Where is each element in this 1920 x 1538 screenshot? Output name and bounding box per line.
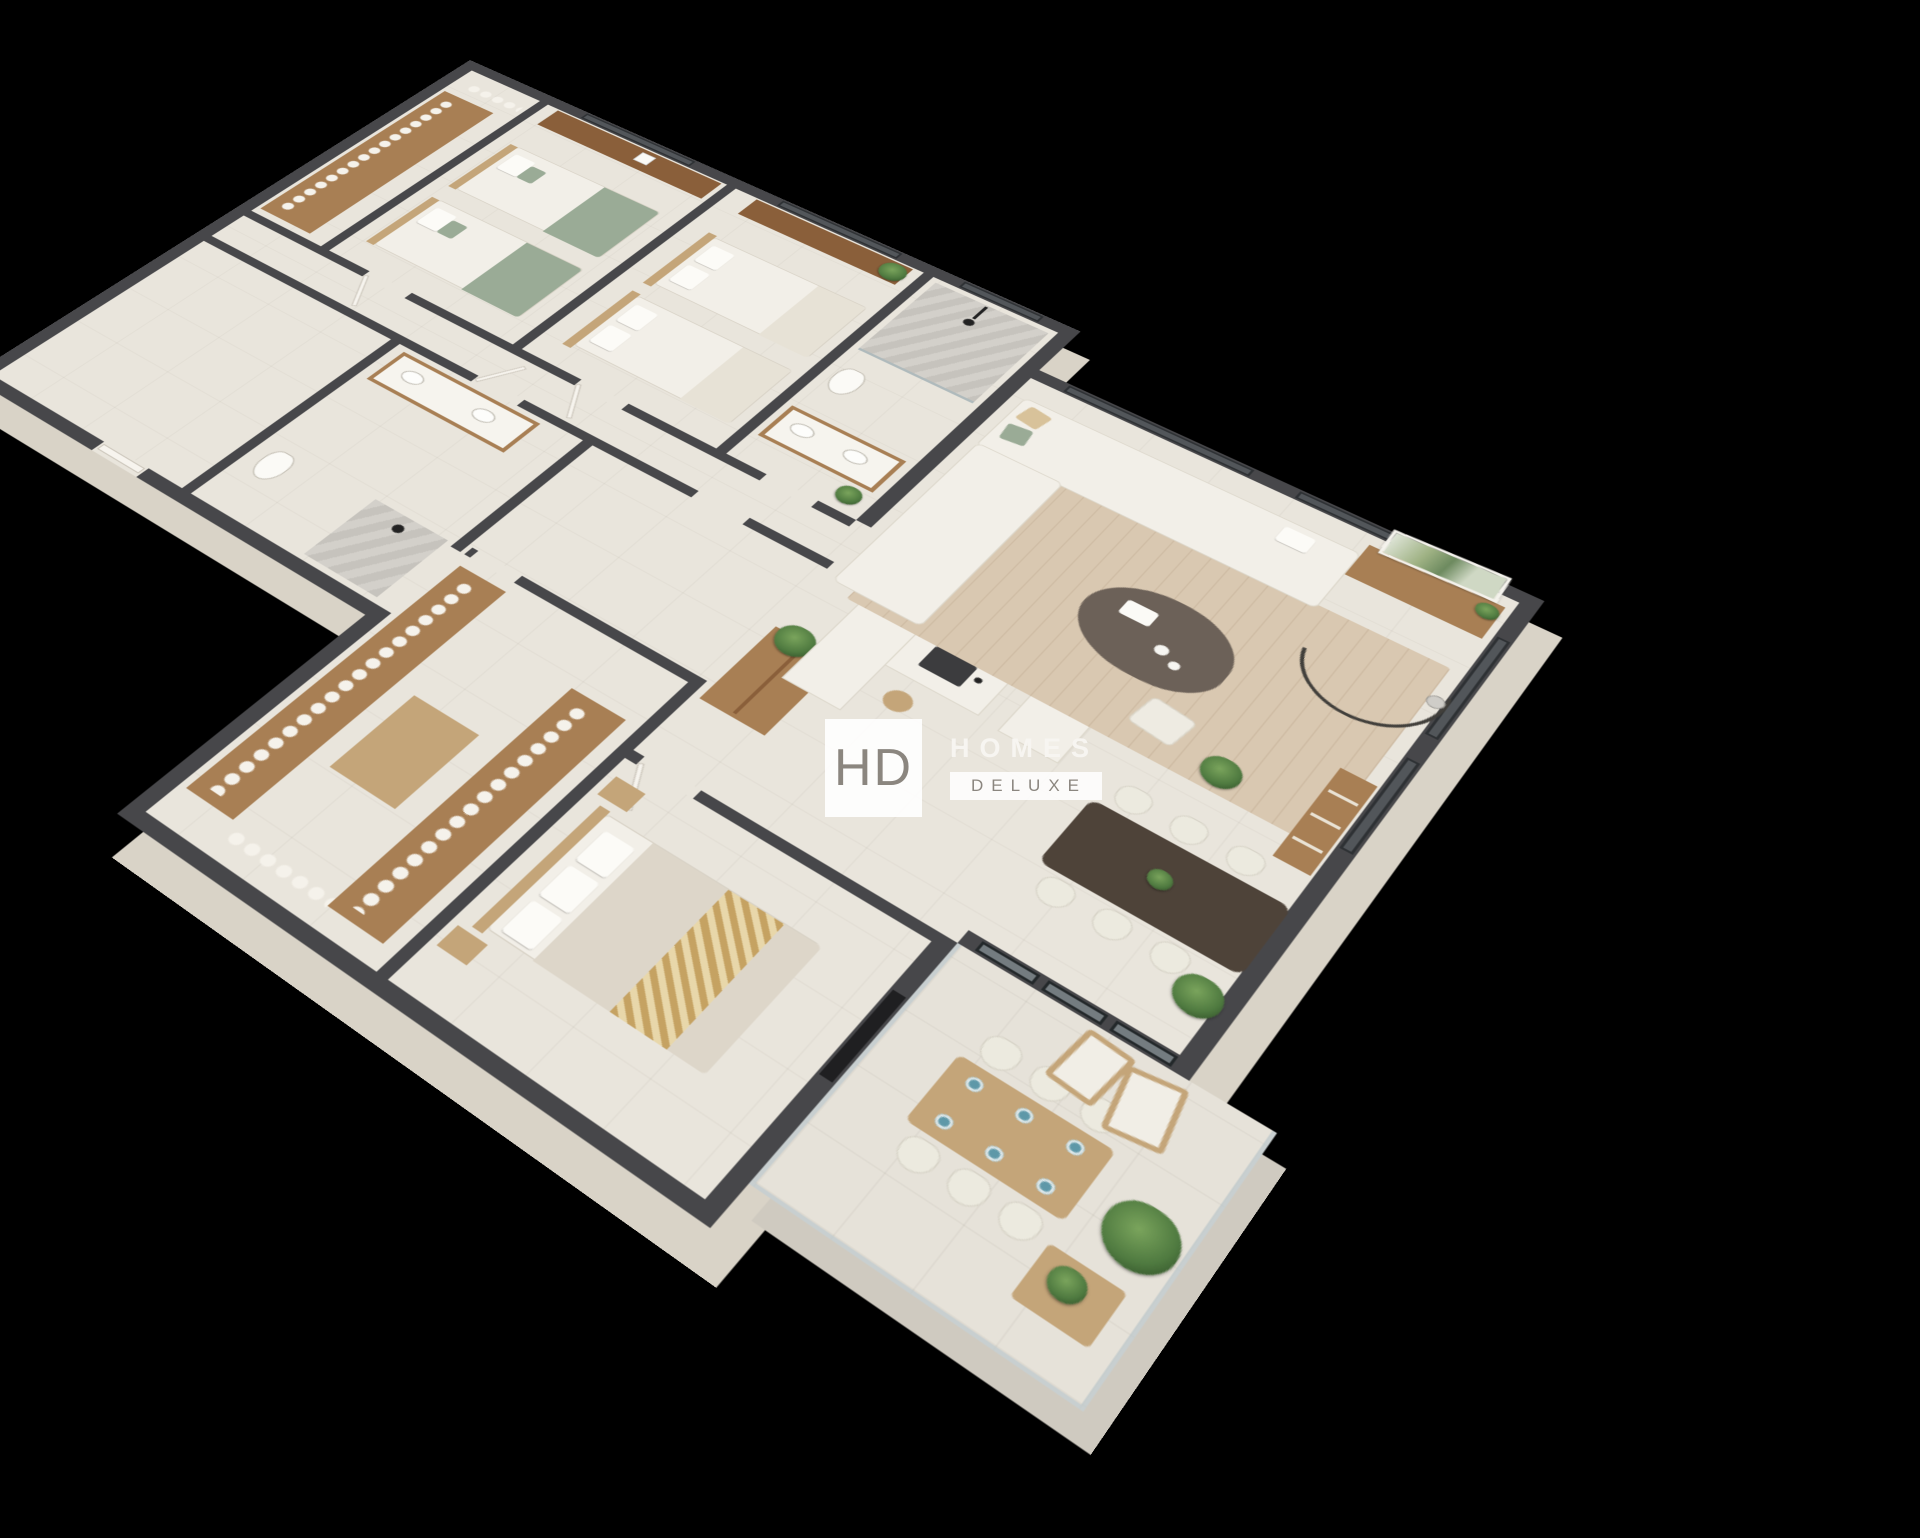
plate-icon <box>932 1111 957 1132</box>
coffee-table-tray <box>1118 599 1160 627</box>
watermark-subtitle-text: DELUXE <box>971 776 1087 796</box>
shelf-line <box>1292 836 1324 854</box>
terrace-palm-plant <box>1085 1189 1196 1289</box>
watermark-monogram: HD <box>825 719 922 817</box>
plate-icon <box>962 1074 986 1095</box>
watermark-title: HOMES <box>950 733 1098 764</box>
plate-icon <box>982 1143 1007 1165</box>
bed-pillow <box>668 265 710 291</box>
coffee-table-cup <box>1151 643 1171 658</box>
watermark-monogram-text: HD <box>834 738 913 798</box>
floor-plan-render: HD HOMES DELUXE <box>0 0 1920 1538</box>
bed-pillow <box>694 245 735 270</box>
shelf-line <box>1310 812 1341 830</box>
shelf-line <box>1328 789 1359 807</box>
plate-icon <box>1012 1105 1036 1126</box>
plate-icon <box>1063 1137 1088 1159</box>
watermark-subtitle-band: DELUXE <box>950 772 1102 800</box>
coffee-table-cup <box>1166 660 1183 672</box>
plate-icon <box>1033 1175 1058 1197</box>
